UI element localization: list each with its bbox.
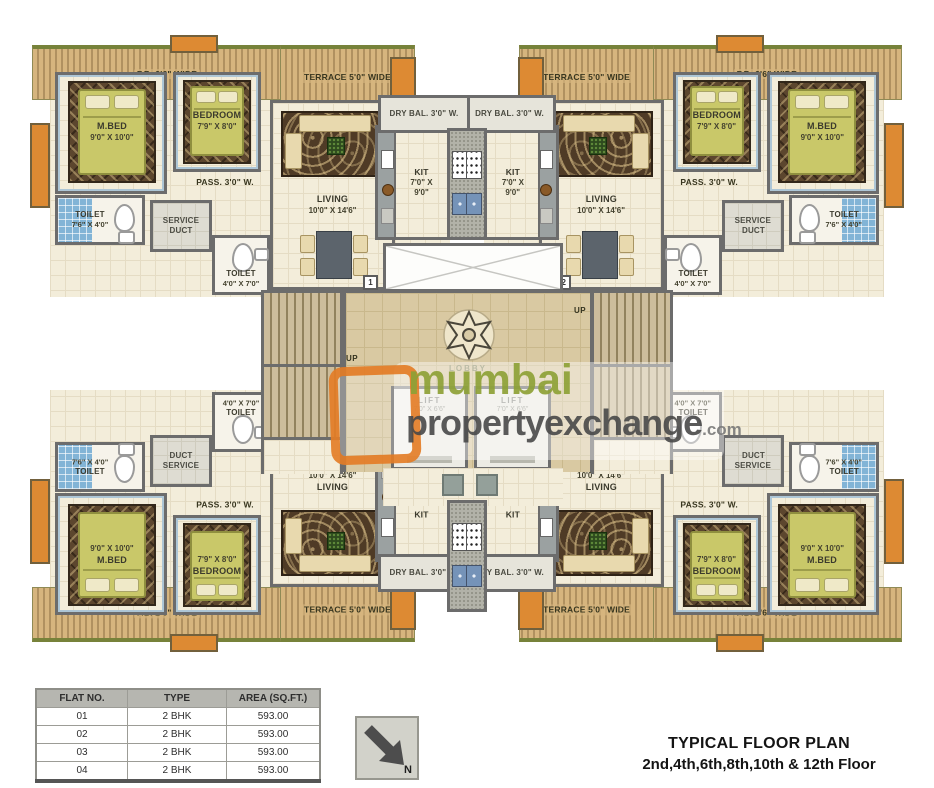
lift-right: LIFT 7'0" X 6'6" (474, 386, 551, 470)
cell-flat-no: 02 (36, 726, 128, 744)
dining-chair (619, 235, 634, 253)
master-bedroom-label: M.BED 9'0" X 10'0" (80, 91, 144, 173)
stairs-up-label: UP (574, 306, 586, 315)
service-duct-label: SERVICE DUCT (153, 438, 209, 484)
col-flat-no: FLAT NO. (36, 689, 128, 708)
flat-area-table: FLAT NO. TYPE AREA (SQ.FT.) 01 2 BHK 593… (35, 688, 321, 783)
plant-icon (327, 137, 345, 155)
sofa-armchair (632, 133, 649, 169)
counter-box (381, 208, 394, 224)
cell-type: 2 BHK (128, 726, 227, 744)
toilet-1-label: TOILET 7'6" X 4'0" (60, 198, 120, 242)
table-row: 03 2 BHK 593.00 (36, 744, 320, 762)
cell-type: 2 BHK (128, 708, 227, 726)
gas-cylinder-icon (382, 184, 394, 196)
floor-plan: F.B. 2'6" WIDE TERRACE 5'0" WIDE M.BED 9… (0, 0, 934, 788)
ledge-block (170, 634, 218, 652)
sofa-armchair (285, 133, 302, 169)
floor-notch (467, 35, 518, 97)
passage-label: PASS. 3'0" W. (155, 497, 295, 513)
toilet-2-label: TOILET 4'0" X 7'0" (667, 397, 719, 419)
lobby-label: LOBBY (438, 364, 498, 373)
bedroom: BEDROOM 7'9" X 8'0" (173, 72, 261, 172)
staircase-right (591, 290, 673, 440)
lift-dimension: 7'0" X 6'6" (414, 406, 446, 413)
master-bedroom-label: M.BED 9'0" X 10'0" (80, 514, 144, 596)
toilet-2-label: TOILET 4'0" X 7'0" (215, 397, 267, 419)
toilet-1-label: TOILET 7'6" X 4'0" (814, 445, 874, 489)
dining-chair (300, 235, 315, 253)
dry-balcony-label: DRY BAL. 3'0" W. (381, 98, 467, 130)
toilet-bowl-icon (232, 415, 254, 444)
bedroom: BEDROOM 7'9" X 8'0" (673, 515, 761, 615)
master-bedroom-label: M.BED 9'0" X 10'0" (790, 514, 854, 596)
toilet-2-label: TOILET 4'0" X 7'0" (215, 268, 267, 290)
title-line-1: TYPICAL FLOOR PLAN (609, 735, 909, 753)
staircase-left (261, 290, 343, 440)
col-type: TYPE (128, 689, 227, 708)
bedroom-label: BEDROOM 7'9" X 8'0" (192, 88, 242, 154)
sink-icon (381, 518, 394, 537)
service-duct: SERVICE DUCT (150, 435, 212, 487)
north-arrow: N (355, 716, 419, 780)
dry-balcony-label: DRY BAL. 3'0" W. (467, 98, 553, 130)
lift-left: LIFT 7'0" X 6'6" (391, 386, 468, 470)
passage-label: PASS. 3'0" W. (155, 174, 295, 190)
lift-label: LIFT (501, 396, 524, 405)
dining-chair (566, 235, 581, 253)
kitchen-platform (378, 128, 396, 237)
wash-basin-icon (254, 248, 269, 261)
hob-icon (466, 523, 482, 551)
living-rug (550, 111, 653, 177)
foyer-cross-icon (386, 246, 560, 289)
sofa (563, 115, 635, 132)
ledge-block (170, 35, 218, 53)
sink-panel-icon (466, 193, 482, 215)
service-duct-label: SERVICE DUCT (725, 203, 781, 249)
kitchen-label: KIT 7'0" X 9'0" (487, 128, 538, 237)
bedroom-label: BEDROOM 7'9" X 8'0" (692, 88, 742, 154)
stair-landing-left (261, 440, 343, 474)
sink-icon (540, 150, 553, 169)
toilet-1: TOILET 7'6" X 4'0" (789, 195, 879, 245)
cell-area: 593.00 (227, 726, 321, 744)
door-mat (476, 474, 498, 496)
cell-type: 2 BHK (128, 762, 227, 782)
master-bedroom: M.BED 9'0" X 10'0" (767, 72, 879, 194)
toilet-2: TOILET 4'0" X 7'0" (212, 235, 270, 295)
stairs-up-label: UP (346, 354, 358, 363)
service-duct: SERVICE DUCT (722, 200, 784, 252)
kitchen: KIT 7'0" X 9'0" (375, 125, 450, 240)
master-bedroom: M.BED 9'0" X 10'0" (55, 493, 167, 615)
service-duct: SERVICE DUCT (722, 435, 784, 487)
dining-chair (619, 258, 634, 276)
col-area: AREA (SQ.FT.) (227, 689, 321, 708)
cell-type: 2 BHK (128, 744, 227, 762)
toilet-2: TOILET 4'0" X 7'0" (664, 235, 722, 295)
kitchen: KIT 7'0" X 9'0" (484, 125, 559, 240)
floor-notch (416, 35, 467, 97)
lift-label: LIFT (418, 396, 441, 405)
master-bedroom: M.BED 9'0" X 10'0" (767, 493, 879, 615)
kitchen-label: KIT 7'0" X 9'0" (396, 128, 447, 237)
sofa-armchair (285, 518, 302, 554)
bed: BEDROOM 7'9" X 8'0" (190, 86, 244, 156)
service-duct-label: SERVICE DUCT (725, 438, 781, 484)
wash-basin-icon (665, 248, 680, 261)
sink-panel-icon (466, 565, 482, 587)
ledge-block (30, 123, 50, 208)
toilet-1: TOILET 7'6" X 4'0" (789, 442, 879, 492)
service-duct: SERVICE DUCT (150, 200, 212, 252)
counter-box (540, 208, 553, 224)
living-label: LIVING 10'0" X 14'6" (542, 193, 661, 217)
dining-chair (353, 235, 368, 253)
ledge-block (30, 479, 50, 564)
toilet-1: TOILET 7'6" X 4'0" (55, 442, 145, 492)
sofa (299, 555, 371, 572)
table-row: 02 2 BHK 593.00 (36, 726, 320, 744)
cell-flat-no: 01 (36, 708, 128, 726)
hob-icon (466, 151, 482, 179)
lobby-medallion-icon (442, 308, 496, 362)
cell-flat-no: 03 (36, 744, 128, 762)
master-bed: M.BED 9'0" X 10'0" (788, 89, 856, 175)
plant-icon (589, 532, 607, 550)
entrance-foyer (383, 243, 563, 292)
table-header-row: FLAT NO. TYPE AREA (SQ.FT.) (36, 689, 320, 708)
living-rug (550, 510, 653, 576)
ledge-block (884, 479, 904, 564)
cell-area: 593.00 (227, 744, 321, 762)
master-bed: M.BED 9'0" X 10'0" (78, 89, 146, 175)
cell-area: 593.00 (227, 762, 321, 782)
wash-basin-icon (118, 443, 135, 456)
master-bed: M.BED 9'0" X 10'0" (78, 512, 146, 598)
toilet-bowl-icon (680, 415, 702, 444)
living-rug (281, 510, 384, 576)
bed: BEDROOM 7'9" X 8'0" (190, 531, 244, 601)
dining-table (316, 231, 352, 279)
kitchen-duct-top (447, 128, 487, 240)
dining-table (582, 231, 618, 279)
wash-basin-icon (118, 231, 135, 244)
north-label: N (404, 764, 412, 776)
title-line-2: 2nd,4th,6th,8th,10th & 12th Floor (609, 756, 909, 773)
sofa (299, 115, 371, 132)
cell-flat-no: 04 (36, 762, 128, 782)
plant-icon (589, 137, 607, 155)
stair-landing-right (591, 440, 673, 474)
table-row: 01 2 BHK 593.00 (36, 708, 320, 726)
master-bed: M.BED 9'0" X 10'0" (788, 512, 856, 598)
toilet-1-label: TOILET 7'6" X 4'0" (814, 198, 874, 242)
plant-icon (327, 532, 345, 550)
sofa-armchair (632, 518, 649, 554)
sink-icon (381, 150, 394, 169)
ledge-block (716, 35, 764, 53)
service-duct-label: SERVICE DUCT (153, 203, 209, 249)
dining-chair (353, 258, 368, 276)
toilet-1: TOILET 7'6" X 4'0" (55, 195, 145, 245)
flat-marker: 1 (363, 275, 378, 290)
ledge-block (884, 123, 904, 208)
passage-label: PASS. 3'0" W. (639, 174, 779, 190)
kitchen-platform (538, 128, 556, 237)
toilet-2-label: TOILET 4'0" X 7'0" (667, 268, 719, 290)
plan-title: TYPICAL FLOOR PLAN 2nd,4th,6th,8th,10th … (609, 735, 909, 773)
passage-label: PASS. 3'0" W. (639, 497, 779, 513)
sofa (563, 555, 635, 572)
lift-dimension: 7'0" X 6'6" (497, 406, 529, 413)
living-rug (281, 111, 384, 177)
bedroom: BEDROOM 7'9" X 8'0" (673, 72, 761, 172)
master-bedroom: M.BED 9'0" X 10'0" (55, 72, 167, 194)
bedroom: BEDROOM 7'9" X 8'0" (173, 515, 261, 615)
sink-icon (540, 518, 553, 537)
toilet-1-label: TOILET 7'6" X 4'0" (60, 445, 120, 489)
cell-area: 593.00 (227, 708, 321, 726)
bedroom-label: BEDROOM 7'9" X 8'0" (692, 533, 742, 599)
bed: BEDROOM 7'9" X 8'0" (690, 86, 744, 156)
gas-cylinder-icon (540, 184, 552, 196)
master-bedroom-label: M.BED 9'0" X 10'0" (790, 91, 854, 173)
kitchen-duct-bottom (447, 500, 487, 612)
door-mat (442, 474, 464, 496)
bedroom-label: BEDROOM 7'9" X 8'0" (192, 533, 242, 599)
bed: BEDROOM 7'9" X 8'0" (690, 531, 744, 601)
dining-chair (566, 258, 581, 276)
dining-chair (300, 258, 315, 276)
table-row: 04 2 BHK 593.00 (36, 762, 320, 782)
ledge-block (716, 634, 764, 652)
